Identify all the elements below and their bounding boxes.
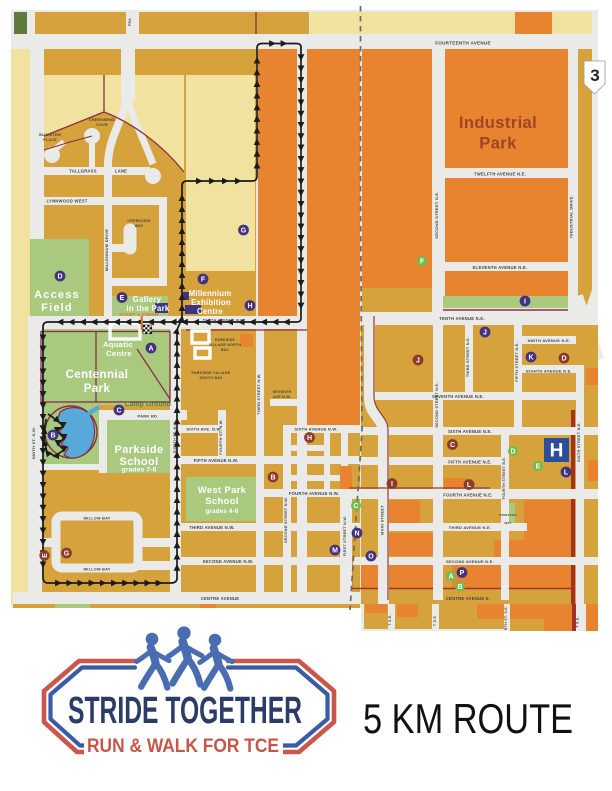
svg-text:Gallery: Gallery <box>133 295 162 304</box>
svg-text:A: A <box>448 574 453 581</box>
svg-text:SECOND STREET N.E.: SECOND STREET N.E. <box>435 382 439 427</box>
svg-text:T S.E: T S.E <box>433 616 437 627</box>
svg-text:Millennium: Millennium <box>189 289 232 298</box>
svg-text:J: J <box>483 330 487 337</box>
svg-text:grades 7-8: grades 7-8 <box>122 467 157 474</box>
svg-text:E: E <box>536 464 541 471</box>
svg-text:H: H <box>550 441 564 462</box>
svg-text:TENTH AVENUE N.E.: TENTH AVENUE N.E. <box>439 316 485 321</box>
svg-text:C: C <box>353 503 358 510</box>
svg-text:SEVENTH: SEVENTH <box>273 390 292 394</box>
svg-text:Exhibition: Exhibition <box>191 298 231 307</box>
svg-text:LYNNWOOD WEST: LYNNWOOD WEST <box>46 199 87 204</box>
svg-text:EIGHTH ST. N.W.: EIGHTH ST. N.W. <box>173 421 177 453</box>
svg-text:FIFTH AVENUE N.E.: FIFTH AVENUE N.E. <box>448 460 492 465</box>
svg-text:BAY: BAY <box>221 348 229 352</box>
svg-text:THIRD STREET N.W.: THIRD STREET N.W. <box>257 373 261 414</box>
svg-text:THIRD AVENUE N.W.: THIRD AVENUE N.W. <box>189 525 234 530</box>
svg-text:MILLENNIUM DRIVE: MILLENNIUM DRIVE <box>104 229 109 272</box>
svg-text:West Park: West Park <box>198 485 247 496</box>
svg-text:G: G <box>241 228 247 235</box>
svg-text:Aquatic: Aquatic <box>103 340 133 349</box>
svg-text:F: F <box>201 277 206 284</box>
svg-text:D: D <box>57 274 62 281</box>
svg-text:BLUESTEM: BLUESTEM <box>39 133 61 137</box>
svg-text:NINTH AVENUE N.E.: NINTH AVENUE N.E. <box>528 338 571 343</box>
svg-text:L: L <box>564 470 569 477</box>
svg-text:PARKSIDE: PARKSIDE <box>215 338 236 342</box>
svg-text:CREEKBEND: CREEKBEND <box>89 118 115 122</box>
svg-text:E: E <box>42 553 49 558</box>
svg-text:SIXTH AVE. N.W.: SIXTH AVE. N.W. <box>186 427 221 432</box>
svg-text:Centre: Centre <box>197 307 223 316</box>
svg-text:FOURTH STREET N.E.: FOURTH STREET N.E. <box>502 457 506 500</box>
svg-text:WAY: WAY <box>135 224 144 228</box>
svg-text:THIRD STREET N.E.: THIRD STREET N.E. <box>466 337 470 377</box>
svg-text:FIFTH AVENUE N.W.: FIFTH AVENUE N.W. <box>194 458 239 463</box>
svg-text:D: D <box>510 449 515 456</box>
svg-text:T S.E.: T S.E. <box>576 616 580 628</box>
svg-text:O: O <box>368 554 374 561</box>
svg-text:WILLOW BAY: WILLOW BAY <box>83 517 110 521</box>
svg-text:PRA: PRA <box>128 18 132 26</box>
svg-text:START & FINISH: START & FINISH <box>119 312 159 317</box>
svg-text:WAY: WAY <box>504 521 511 525</box>
svg-text:E: E <box>120 295 125 302</box>
svg-text:AVE N.W.: AVE N.W. <box>273 395 291 399</box>
svg-text:RUN & WALK FOR TCE: RUN & WALK FOR TCE <box>87 736 279 757</box>
svg-text:Camp Ground: Camp Ground <box>125 401 171 408</box>
svg-text:SECOND AVENUE N.E.: SECOND AVENUE N.E. <box>446 559 494 564</box>
svg-text:SECOND STREET N.E.: SECOND STREET N.E. <box>434 191 439 238</box>
svg-text:VILLAGE NORTH: VILLAGE NORTH <box>209 343 242 347</box>
svg-text:EIGHTH AVENUE N.E.: EIGHTH AVENUE N.E. <box>526 369 572 374</box>
svg-text:F: F <box>420 259 425 266</box>
svg-text:Park: Park <box>84 383 111 395</box>
svg-text:SIXTH STREET N.E.: SIXTH STREET N.E. <box>577 422 581 462</box>
svg-text:PRINTERS: PRINTERS <box>499 513 516 517</box>
svg-text:D: D <box>561 356 566 363</box>
svg-text:FOURTH AVENUE N.W.: FOURTH AVENUE N.W. <box>289 491 339 496</box>
svg-text:LANE: LANE <box>115 169 127 174</box>
svg-text:C: C <box>450 442 455 449</box>
svg-text:SEVENTH AVENUE N.E.: SEVENTH AVENUE N.E. <box>432 394 484 399</box>
svg-text:FOURTH AVENUE N.E.: FOURTH AVENUE N.E. <box>443 493 492 498</box>
svg-text:H: H <box>247 303 252 310</box>
svg-text:C: C <box>116 408 121 415</box>
svg-text:PARK RD.: PARK RD. <box>137 414 158 419</box>
svg-text:RTH ST. S.E.: RTH ST. S.E. <box>504 606 508 630</box>
svg-text:SECOND STREET N.W.: SECOND STREET N.W. <box>284 497 288 543</box>
svg-text:SOUTH BAY: SOUTH BAY <box>199 376 222 380</box>
svg-text:T S.E.: T S.E. <box>388 614 392 626</box>
svg-text:TALLGRASS: TALLGRASS <box>69 169 97 174</box>
svg-text:COVE: COVE <box>96 123 108 127</box>
svg-text:A: A <box>148 346 153 353</box>
svg-text:SIXTH AVENUE N.E.: SIXTH AVENUE N.E. <box>448 429 492 434</box>
svg-text:FIFTH STREET N.E.: FIFTH STREET N.E. <box>515 342 519 381</box>
svg-text:K: K <box>528 355 533 362</box>
svg-text:B: B <box>50 433 55 440</box>
svg-text:grades 4-6: grades 4-6 <box>206 508 239 515</box>
svg-text:Industrial: Industrial <box>459 114 537 132</box>
svg-text:B: B <box>270 475 275 482</box>
svg-text:SIXTH AVENUE N.W.: SIXTH AVENUE N.W. <box>294 427 337 432</box>
svg-text:FOURTEENTH AVENUE: FOURTEENTH AVENUE <box>435 41 491 46</box>
svg-text:Field: Field <box>41 302 73 314</box>
svg-text:CENTRE AVENUE: CENTRE AVENUE <box>201 596 240 601</box>
svg-text:STRIDE TOGETHER: STRIDE TOGETHER <box>68 690 302 732</box>
svg-text:FIRST STREET N.W.: FIRST STREET N.W. <box>343 516 347 557</box>
svg-text:B: B <box>457 584 462 591</box>
svg-text:INDUSTRIAL DRIVE: INDUSTRIAL DRIVE <box>569 196 574 238</box>
svg-text:Park: Park <box>479 135 517 153</box>
svg-text:WILLOW BAY: WILLOW BAY <box>83 568 110 572</box>
svg-text:L: L <box>467 482 472 489</box>
svg-text:H: H <box>307 435 312 442</box>
svg-text:P: P <box>460 570 465 577</box>
svg-text:I: I <box>524 299 526 306</box>
svg-text:ELEVENTH AVENUE N.E.: ELEVENTH AVENUE N.E. <box>473 265 528 270</box>
svg-text:N: N <box>354 531 359 538</box>
svg-text:FOURTH ST. N.W.: FOURTH ST. N.W. <box>219 419 223 454</box>
svg-text:PARKSIDE VILLAGE: PARKSIDE VILLAGE <box>192 371 231 375</box>
svg-text:CREEKSIDE: CREEKSIDE <box>127 219 151 223</box>
svg-text:TENTH AVENUE N.W.: TENTH AVENUE N.W. <box>203 319 246 323</box>
svg-text:Centennial: Centennial <box>66 369 129 381</box>
svg-text:TWELFTH AVENUE N.E.: TWELFTH AVENUE N.E. <box>474 172 526 177</box>
svg-text:School: School <box>205 496 238 507</box>
svg-text:Centre: Centre <box>106 349 132 358</box>
svg-text:THIRD AVENUE N.E.: THIRD AVENUE N.E. <box>449 525 492 530</box>
svg-text:CENTRE AVENUE E.: CENTRE AVENUE E. <box>446 596 490 601</box>
svg-text:5 KM ROUTE: 5 KM ROUTE <box>363 695 573 742</box>
svg-text:Parkside: Parkside <box>114 444 163 456</box>
svg-text:I: I <box>391 481 393 488</box>
svg-text:MAIN STREET: MAIN STREET <box>380 505 385 535</box>
svg-text:G: G <box>64 551 70 558</box>
svg-text:J: J <box>416 358 420 365</box>
svg-text:NINTH ST. N.W.: NINTH ST. N.W. <box>31 427 36 459</box>
svg-text:SECOND AVENUE N.W.: SECOND AVENUE N.W. <box>203 559 254 564</box>
svg-text:3: 3 <box>590 66 599 85</box>
svg-text:M: M <box>332 548 338 555</box>
svg-text:Access: Access <box>34 289 80 301</box>
svg-text:PLACE: PLACE <box>43 138 57 142</box>
